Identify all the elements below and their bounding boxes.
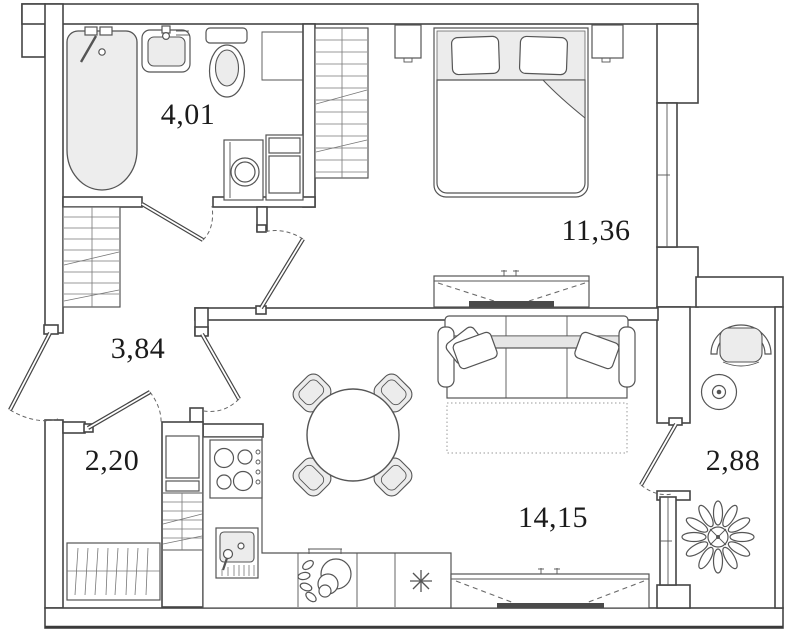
room-area-label-bedroom: 11,36: [562, 214, 631, 248]
bathroom-niche: [262, 32, 303, 80]
room-area-label-storage: 2,20: [85, 444, 140, 478]
room-area-label-balcony: 2,88: [706, 444, 761, 478]
dishwasher-asterisk-icon: [410, 570, 432, 592]
balcony-window-icon: [660, 497, 676, 585]
room-area-label-living-kitchen: 14,15: [518, 501, 588, 535]
bathtub-icon: [67, 27, 137, 190]
room-area-label-bathroom: 4,01: [161, 98, 216, 132]
round-dining-table-icon: [307, 389, 399, 481]
door-swing-arc-icon: [10, 410, 58, 421]
tv-stand-icon: [451, 568, 649, 608]
bathroom-cabinet-icon: [266, 135, 303, 200]
door-swing-arc-icon: [263, 231, 303, 239]
room-area-label-hallway: 3,84: [111, 332, 166, 366]
door-swing-arc-icon: [150, 392, 161, 424]
closet-hatch-icon: [315, 28, 368, 178]
bedroom-window-icon: [657, 103, 677, 247]
floor-plan-drawing: [0, 0, 794, 632]
pillow-icon: [519, 36, 567, 75]
fridge-column-icon: [162, 422, 203, 607]
nightstand-icon: [592, 25, 623, 62]
plant-icon: [682, 501, 754, 573]
sofa-icon: [438, 316, 635, 398]
balcony-door: [641, 418, 682, 495]
washing-machine-icon: [224, 140, 263, 200]
toilet-icon: [206, 28, 247, 97]
stove-icon: [210, 440, 262, 498]
door-swing-arc-icon: [204, 399, 239, 412]
wash-basin-icon: [142, 26, 190, 72]
dining-set: [289, 370, 415, 499]
shelf-hatch-icon: [67, 543, 160, 600]
side-table-icon: [702, 375, 737, 410]
pillow-icon: [451, 36, 499, 75]
nightstand-icon: [395, 25, 421, 62]
kitchen-sink-icon: [216, 528, 258, 578]
bathroom-door: [142, 204, 213, 240]
door-swing-arc-icon: [203, 206, 213, 240]
bedroom-door: [256, 225, 303, 314]
floor-plan: 4,01 3,84 2,20 11,36 14,15 2,88: [0, 0, 794, 632]
storage-door: [84, 392, 161, 432]
wardrobe-hatch-icon: [63, 207, 120, 307]
rug-icon: [447, 403, 627, 453]
entrance-door: [10, 325, 58, 421]
armchair-icon: [711, 325, 771, 366]
double-bed-icon: [434, 28, 588, 197]
tv-stand-icon: [434, 270, 589, 307]
living-room-door: [195, 327, 239, 412]
